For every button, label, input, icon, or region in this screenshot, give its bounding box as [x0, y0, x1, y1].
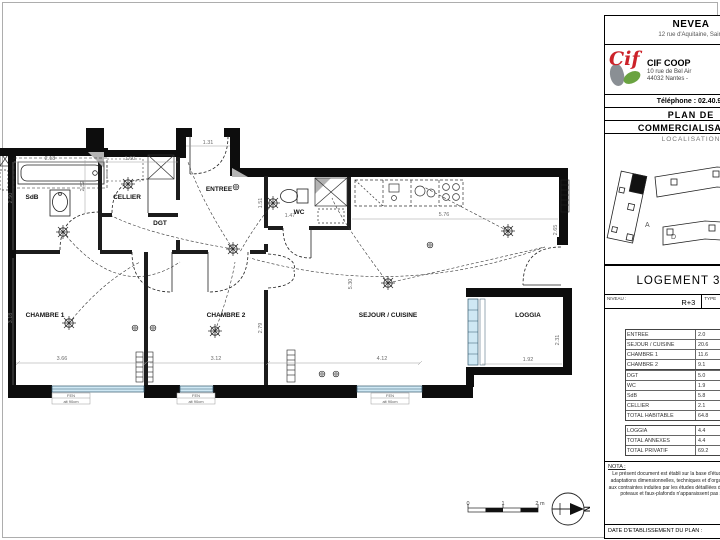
dim: 5.30 — [348, 279, 354, 290]
window-tag: FEN alt 90cm — [371, 393, 409, 404]
building-a — [607, 171, 647, 243]
site-sketch: A B D — [605, 143, 720, 258]
localisation-section: LOCALISATION A B D — [605, 133, 720, 264]
plan-title-line1: PLAN DE — [605, 107, 720, 120]
socket-icon — [233, 184, 239, 190]
svg-text:alt 90cm: alt 90cm — [63, 399, 79, 404]
room-label-entree: ENTREE — [206, 186, 233, 193]
nota-label: NOTA : — [608, 464, 720, 470]
dim: 2.31 — [555, 335, 561, 346]
building-b — [655, 167, 720, 197]
socket-icon — [427, 242, 433, 248]
table-row: SdB5.8 — [626, 390, 720, 400]
annex-table: LOGGIA4.4 TOTAL ANNEXES4.4 TOTAL PRIVATI… — [625, 425, 720, 456]
dim: 1.51 — [258, 198, 264, 209]
room-label-wc: WC — [294, 209, 305, 216]
table-row: TOTAL ANNEXES4.4 — [626, 435, 720, 445]
svg-text:2 m: 2 m — [535, 501, 545, 507]
cif-logo-icon: Cif — [607, 48, 645, 92]
socket-icon — [333, 371, 339, 377]
svg-text:FEN: FEN — [67, 393, 75, 398]
type-label: TYPE — [702, 295, 720, 308]
svg-text:alt 90cm: alt 90cm — [188, 399, 204, 404]
firm-header: Cif CIF COOP 10 rue de Bel Air 44032 Nan… — [605, 44, 720, 94]
company-name: NEVEA — [605, 19, 720, 30]
ceiling-light-icon — [121, 177, 135, 191]
room-label-chambre1: CHAMBRE 1 — [26, 312, 65, 319]
dim: 2.18 — [45, 156, 56, 162]
room-label-chambre2: CHAMBRE 2 — [207, 312, 246, 319]
room-label-sdb: SdB — [26, 194, 39, 201]
area-table: ENTREE2.0 SEJOUR / CUISINE20.6 CHAMBRE 1… — [625, 329, 720, 421]
floor-plan: FEN alt 90cm FEN alt 90cm FEN alt 90cm — [0, 0, 604, 540]
plan-title-line2: COMMERCIALISATION — [605, 120, 720, 133]
window-tag: FEN alt 90cm — [177, 393, 215, 404]
loggia-glazing — [468, 299, 485, 365]
logo-text: Cif — [609, 48, 640, 70]
dim: 2.52 — [80, 181, 86, 192]
interior-walls — [16, 157, 351, 385]
room-label-sejour: SEJOUR / CUISINE — [359, 312, 418, 319]
kitchen-units — [355, 180, 463, 206]
cellier-appliance — [107, 159, 143, 181]
svg-text:N: N — [583, 506, 592, 512]
niveau-row: NIVEAU : R+3 TYPE — [605, 294, 720, 308]
logement-title: LOGEMENT 30 (B — [605, 264, 720, 294]
dim: 2.79 — [258, 323, 264, 334]
socket-icon — [132, 325, 138, 331]
room-label-cellier: CELLIER — [113, 194, 141, 201]
company-address: 12 rue d'Aquitaine, Saint — [605, 32, 720, 38]
room-label-loggia: LOGGIA — [515, 312, 541, 319]
table-row: CHAMBRE 29.1 — [626, 359, 720, 370]
window-chambre1 — [52, 386, 144, 392]
table-row: CELLIER2.1 — [626, 400, 720, 410]
niveau-label: NIVEAU : — [607, 296, 626, 301]
bathtub — [14, 158, 107, 188]
dim: 2.65 — [553, 225, 559, 236]
dim: 3.12 — [211, 356, 222, 362]
dimension-lines — [13, 146, 562, 385]
wc-door — [283, 228, 311, 258]
sejour-double-door — [268, 254, 294, 288]
title-block: NEVEA 12 rue d'Aquitaine, Saint Cif CIF … — [604, 15, 720, 539]
table-row: CHAMBRE 111.6 — [626, 349, 720, 359]
table-row: LOGGIA4.4 — [626, 426, 720, 435]
table-row: DGT5.0 — [626, 370, 720, 380]
dim: 3.18 — [8, 313, 14, 324]
nota-section: NOTA : Le présent document est établi su… — [605, 461, 720, 524]
logo-green-shape — [621, 68, 642, 86]
window-sejour — [357, 386, 422, 392]
dim: 5.76 — [439, 212, 450, 218]
dim: 1.31 — [203, 140, 214, 146]
niveau-value: R+3 — [681, 298, 695, 307]
outer-walls — [0, 128, 572, 398]
building-a-label: A — [645, 222, 650, 229]
company-header: NEVEA 12 rue d'Aquitaine, Saint — [605, 16, 720, 44]
firm-address1: 10 rue de Bel Air — [647, 69, 691, 75]
phone-line: Téléphone : 02.40.99 — [605, 94, 720, 107]
windows — [52, 299, 485, 392]
table-row: WC1.9 — [626, 380, 720, 390]
svg-text:alt 90cm: alt 90cm — [382, 399, 398, 404]
svg-text:FEN: FEN — [386, 393, 394, 398]
date-row: DATE D'ETABLISSEMENT DU PLAN : — [605, 524, 720, 538]
table-row: TOTAL HABITABLE64.8 — [626, 410, 720, 420]
scale-bar: 0 1 2 m — [466, 501, 545, 512]
toilet — [281, 189, 309, 203]
room-label-dgt: DGT — [153, 220, 167, 227]
nota-text: Le présent document est établi sur la ba… — [608, 471, 720, 498]
dim: 3.66 — [57, 356, 68, 362]
svg-text:FEN: FEN — [192, 393, 200, 398]
firm-name: CIF COOP — [647, 58, 691, 68]
dim: 1.60 — [125, 156, 136, 162]
firm-address2: 44032 Nantes - — [647, 76, 691, 82]
table-row: SEJOUR / CUISINE20.6 — [626, 339, 720, 349]
chambre1-door — [132, 252, 172, 292]
north-arrow-icon: N — [552, 493, 592, 525]
window-tag: FEN alt 90cm — [52, 393, 90, 404]
table-row: TOTAL PRIVATIF69.2 — [626, 445, 720, 455]
chambre2-door — [208, 252, 248, 292]
table-row: ENTREE2.0 — [626, 330, 720, 339]
building-d — [663, 221, 720, 245]
socket-icon — [150, 325, 156, 331]
dim: 2.50 — [8, 193, 14, 204]
dim: 1.92 — [523, 357, 534, 363]
window-chambre2 — [180, 386, 213, 392]
dim: 4.12 — [377, 356, 388, 362]
washbasin — [50, 190, 70, 216]
localisation-label: LOCALISATION — [605, 134, 720, 143]
socket-icon — [319, 371, 325, 377]
building-d-label: D — [671, 234, 676, 241]
area-table-zone: ENTREE2.0 SEJOUR / CUISINE20.6 CHAMBRE 1… — [605, 308, 720, 461]
